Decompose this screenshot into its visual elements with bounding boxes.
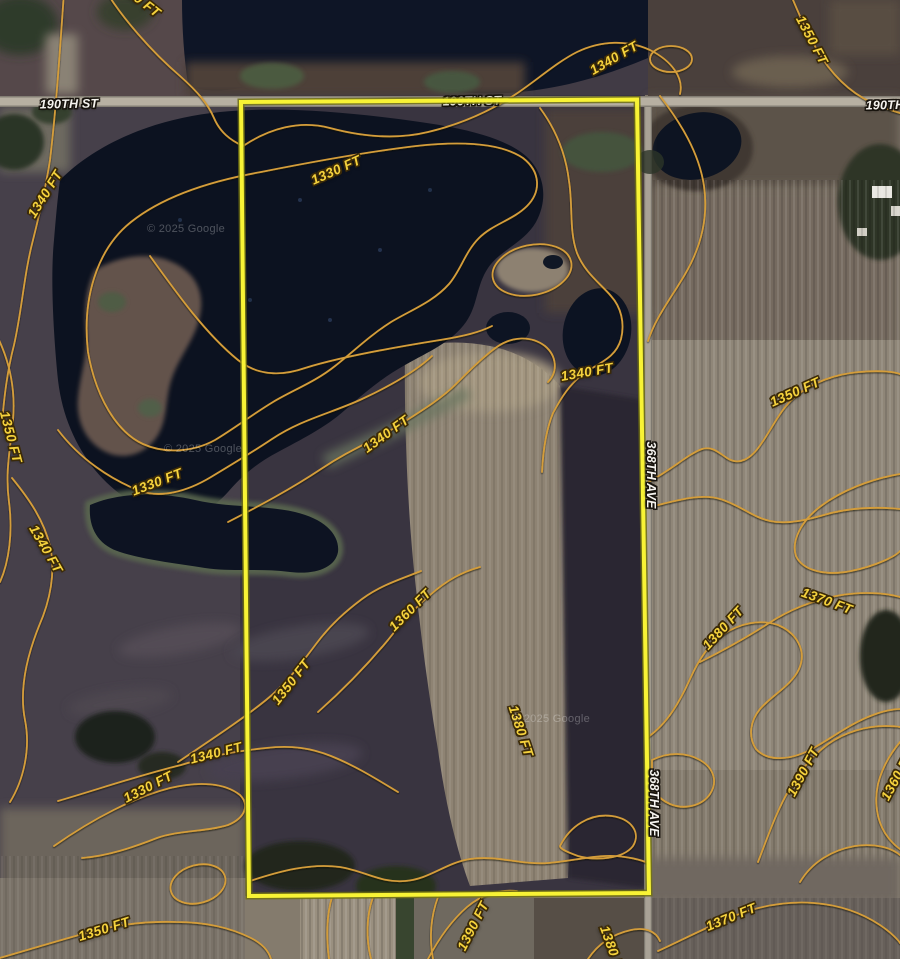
attribution-watermark: © 2025 Google [147,223,225,235]
elevation-label: 1370 FT [704,900,759,934]
road-name-label: 190TH ST [866,97,900,112]
property-boundary[interactable] [241,100,649,897]
elevation-label: 1360 FT [386,586,434,634]
crop-field [405,343,574,886]
elevation-label: 1380 FT [597,923,629,959]
north-shore-terrain [0,0,153,94]
farm-buildings [857,186,900,578]
labels-under-layer: 190TH ST [0,0,900,959]
elevation-label: 1340 FT [188,739,243,766]
elevation-label: 1340 FT [25,168,66,221]
south-fields [245,896,650,959]
road-name-label: 368TH AVE [644,441,658,508]
boundary-overlay [0,0,900,959]
contour-lines [0,0,900,959]
elevation-label: 1360 FT [878,749,900,803]
elevation-label: 1330 FT [112,0,163,20]
satellite-imagery [0,0,900,959]
attribution-watermark: © 2025 Google [164,443,242,455]
elevation-label: 1340 FT [360,412,412,455]
elevation-label: 1350 FT [0,409,25,464]
elevation-label: 1340 FT [560,360,615,384]
land-base [0,0,900,959]
attribution-watermark: © 2025 Google [512,713,590,725]
elevation-label: 1390 FT [784,745,822,799]
elevation-label: 1330 FT [309,152,364,187]
elevation-label: 1350 FT [269,656,313,707]
elevation-label: 1350 FT [793,13,831,67]
labels-layer: 1330 FT1340 FT1350 FT1330 FT1340 FT1350 … [0,0,900,959]
elevation-label: 1350 FT [76,914,131,944]
elevation-label: 1370 FT [799,585,854,617]
lake [52,110,638,573]
elevation-label: 1380 FT [506,703,537,758]
elevation-label: 1350 FT [768,374,823,409]
elevation-label: 1340 FT [587,38,640,78]
elevation-label: 1330 FT [121,768,175,805]
satellite-map-viewport[interactable]: 190TH ST 1330 FT1340 FT1350 FT1330 FT134… [0,0,900,959]
elevation-label: 1340 FT [26,522,66,575]
elevation-label: 1330 FT [130,465,185,498]
elevation-label: 1390 FT [454,899,491,953]
road-name-label: 190TH ST [40,96,99,111]
property-boundary-outline [241,100,649,897]
elevation-label: 1380 FT [699,603,746,652]
